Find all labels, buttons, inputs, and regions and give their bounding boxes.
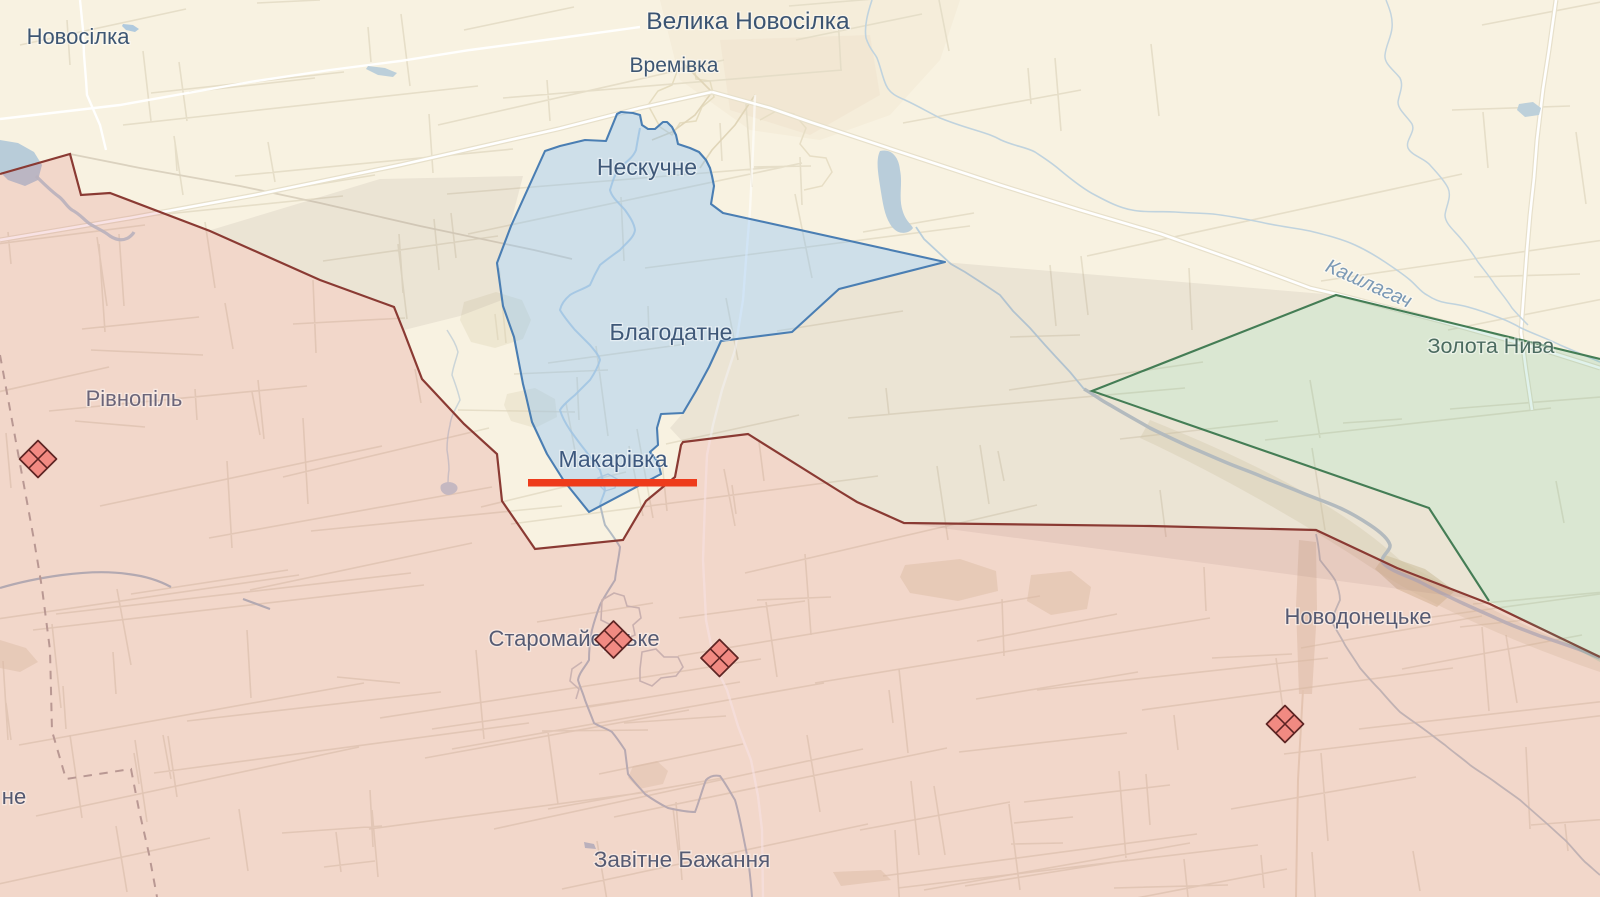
svg-text:Нескучне: Нескучне (597, 154, 697, 180)
svg-text:Времівка: Времівка (630, 54, 719, 77)
svg-text:Новосілка: Новосілка (27, 24, 131, 49)
svg-text:не: не (2, 784, 26, 809)
svg-text:Завітне Бажання: Завітне Бажання (594, 847, 770, 872)
svg-text:Новодонецьке: Новодонецьке (1285, 604, 1432, 629)
svg-text:Золота Нива: Золота Нива (1428, 334, 1555, 358)
svg-text:Велика Новосілка: Велика Новосілка (646, 8, 850, 35)
svg-text:Благодатне: Благодатне (610, 319, 733, 345)
svg-text:Рівнопіль: Рівнопіль (86, 386, 183, 411)
svg-text:Старомайорське: Старомайорське (488, 626, 659, 651)
svg-text:Макарівка: Макарівка (558, 446, 667, 472)
